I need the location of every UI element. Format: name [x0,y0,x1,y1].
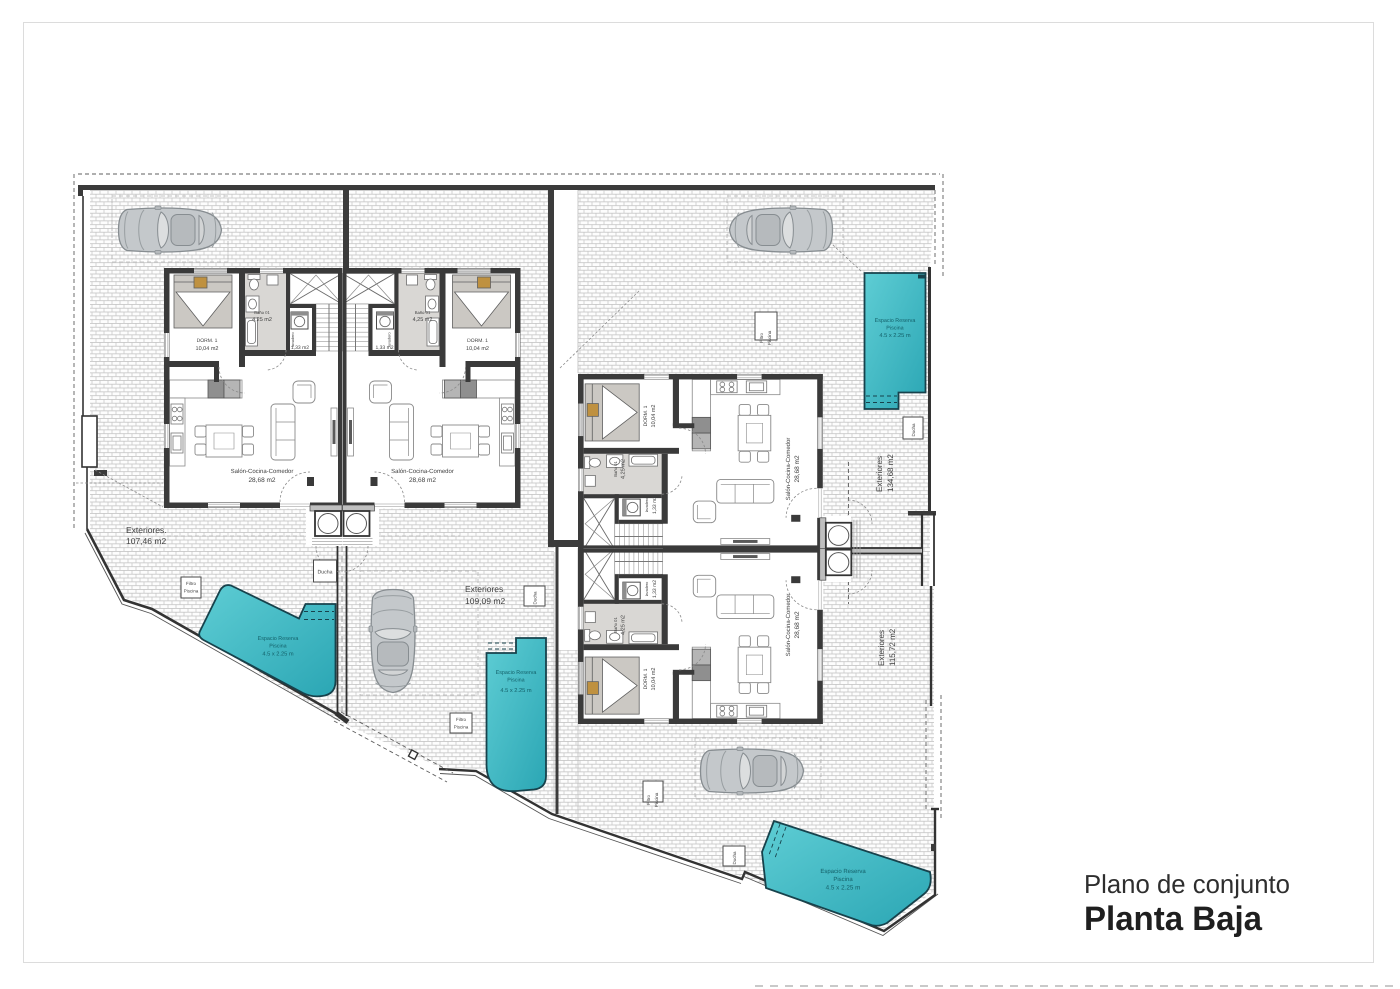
svg-text:115,72 m2: 115,72 m2 [888,628,897,666]
svg-text:Exteriores: Exteriores [875,456,884,492]
svg-text:Exteriores.: Exteriores. [126,525,167,535]
svg-text:Salón-Cocina-Comedor: Salón-Cocina-Comedor [785,438,792,501]
svg-text:4.5 x 2.25 m: 4.5 x 2.25 m [262,652,294,658]
svg-text:Baño 01: Baño 01 [415,310,431,315]
svg-text:Salón-Cocina-Comedor: Salón-Cocina-Comedor [391,468,454,475]
svg-text:Baño 01: Baño 01 [254,310,270,315]
svg-text:Piscina: Piscina [184,589,199,594]
svg-text:DORM. 1: DORM. 1 [197,338,218,344]
svg-text:lavadero: lavadero [645,498,649,513]
svg-text:10,04 m2: 10,04 m2 [651,668,657,691]
svg-text:10,04 m2: 10,04 m2 [466,346,489,352]
svg-text:Piscina: Piscina [654,792,659,807]
svg-text:Baño 01: Baño 01 [613,461,618,477]
svg-text:4,25 m2: 4,25 m2 [413,317,433,323]
svg-text:Filtro: Filtro [456,717,466,722]
svg-text:Baño 01: Baño 01 [613,617,618,633]
svg-text:28,68 m2: 28,68 m2 [248,477,275,484]
svg-text:28,68 m2: 28,68 m2 [794,455,801,482]
svg-text:Exteriores: Exteriores [877,630,886,666]
svg-text:Piscina: Piscina [833,876,853,883]
svg-text:4.5 x 2.25 m: 4.5 x 2.25 m [500,688,532,694]
svg-text:10,04 m2: 10,04 m2 [196,346,219,352]
svg-text:1,33 m2: 1,33 m2 [652,580,658,598]
svg-text:107,46 m2: 107,46 m2 [126,536,166,546]
svg-text:lavadero: lavadero [645,582,649,597]
svg-text:Ducha: Ducha [732,851,737,865]
svg-text:Salón-Cocina-Comedor: Salón-Cocina-Comedor [785,594,792,657]
svg-text:28,68 m2: 28,68 m2 [409,477,436,484]
svg-text:Espacio Reserva: Espacio Reserva [496,670,537,676]
svg-text:4.5 x 2.25 m: 4.5 x 2.25 m [826,885,861,892]
svg-text:Espacio Reserva: Espacio Reserva [875,318,916,324]
svg-text:28,68 m2: 28,68 m2 [794,611,801,638]
svg-text:4,25 m2: 4,25 m2 [252,317,272,323]
svg-text:134,68 m2: 134,68 m2 [886,454,895,492]
svg-text:Piscina: Piscina [767,330,772,345]
svg-text:Piscina: Piscina [269,644,286,650]
svg-text:Filtro: Filtro [186,581,196,586]
svg-text:Espacio Reserva: Espacio Reserva [258,636,299,642]
svg-text:10,04 m2: 10,04 m2 [651,405,657,428]
svg-text:Piscina: Piscina [886,326,903,332]
svg-text:DORM. 1: DORM. 1 [643,668,649,689]
svg-text:Exteriores: Exteriores [465,584,503,594]
svg-text:4,25 m2: 4,25 m2 [621,615,627,635]
svg-text:Salón-Cocina-Comedor: Salón-Cocina-Comedor [231,468,294,475]
svg-text:Piscina: Piscina [507,678,524,684]
svg-text:4,25 m2: 4,25 m2 [621,459,627,479]
svg-text:DORM. 1: DORM. 1 [643,405,649,426]
svg-text:Plano de conjunto: Plano de conjunto [1084,869,1290,899]
svg-text:Ducha: Ducha [318,570,333,576]
svg-text:109,09 m2: 109,09 m2 [465,596,505,606]
svg-text:Filtro: Filtro [646,795,651,805]
svg-text:1,33 m2: 1,33 m2 [291,345,309,351]
svg-text:Ducha: Ducha [911,423,916,437]
svg-text:Espacio Reserva: Espacio Reserva [820,868,866,875]
svg-text:4.5 x 2.25 m: 4.5 x 2.25 m [879,333,911,339]
svg-text:1,33 m2: 1,33 m2 [375,345,393,351]
svg-text:DORM. 1: DORM. 1 [467,338,488,344]
svg-text:1,33 m2: 1,33 m2 [652,496,658,514]
svg-text:Filtro: Filtro [759,333,764,343]
svg-text:Ducha: Ducha [533,591,538,605]
svg-text:Planta Baja: Planta Baja [1084,900,1263,938]
svg-text:Piscina: Piscina [454,725,469,730]
